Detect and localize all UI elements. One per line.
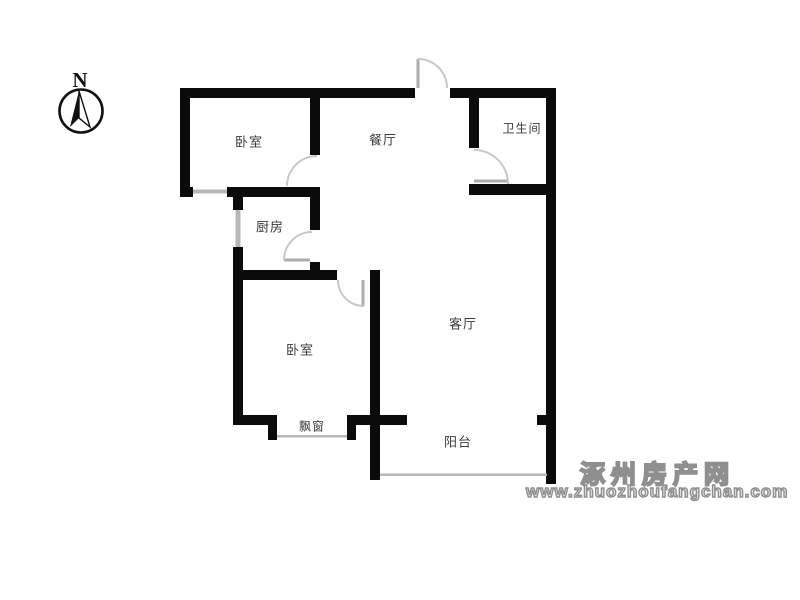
wall-kitchen-top [227,187,320,197]
compass-needle-right [79,91,90,127]
wall-bedroom1-right [310,92,320,155]
bathroom-door-arc [474,150,508,184]
window-kitchen-left [236,210,241,247]
kitchen-door-arc [284,232,312,260]
window-bedroom1-bottom [193,190,227,194]
wall-baywindow-left-stub [268,415,277,440]
wall-top-left [180,88,415,98]
compass-needle-left [70,91,79,127]
floorplan-drawing: N [0,0,800,600]
wall-kitchen-bottom [233,270,337,280]
room-label-bay-window: 飘窗 [299,418,325,435]
bedroom2-door-arc [338,280,364,306]
watermark-site-url: www.zhuozhoufangchan.com [526,482,788,502]
compass-north-label: N [72,68,87,92]
window-bay-outer-line [277,435,347,438]
wall-balcony-right-stub [537,415,547,425]
bedroom1-door-arc [287,156,317,186]
window-balcony-outer-line [380,474,547,477]
room-label-living-room: 客厅 [449,314,477,333]
wall-top-right [450,88,556,98]
room-label-dining-room: 餐厅 [369,130,397,149]
room-label-bathroom: 卫生间 [502,120,541,137]
room-label-balcony: 阳台 [444,432,472,451]
wall-kitchen-right-stub [310,262,320,274]
wall-bedroom1-left [180,88,190,197]
room-label-bedroom-2: 卧室 [286,340,314,359]
entry-door-arc [418,59,447,88]
wall-bathroom-partition [469,92,479,148]
floorplan-page: N 卧室 餐厅 卫生间 厨房 卧室 客厅 阳台 飘窗 涿州房产网 www.zhu… [0,0,800,600]
wall-bedroom2-bottom-right [347,415,407,425]
wall-livingroom-left [370,270,380,480]
wall-kitchen-right [310,197,320,230]
compass: N [60,68,103,133]
wall-kitchen-left-upper [233,197,243,210]
room-label-kitchen: 厨房 [256,217,284,236]
wall-bathroom-bottom [469,184,556,195]
wall-bedroom1-bottom-corner [180,187,193,197]
wall-right [546,88,556,484]
room-label-bedroom-1: 卧室 [235,132,263,151]
